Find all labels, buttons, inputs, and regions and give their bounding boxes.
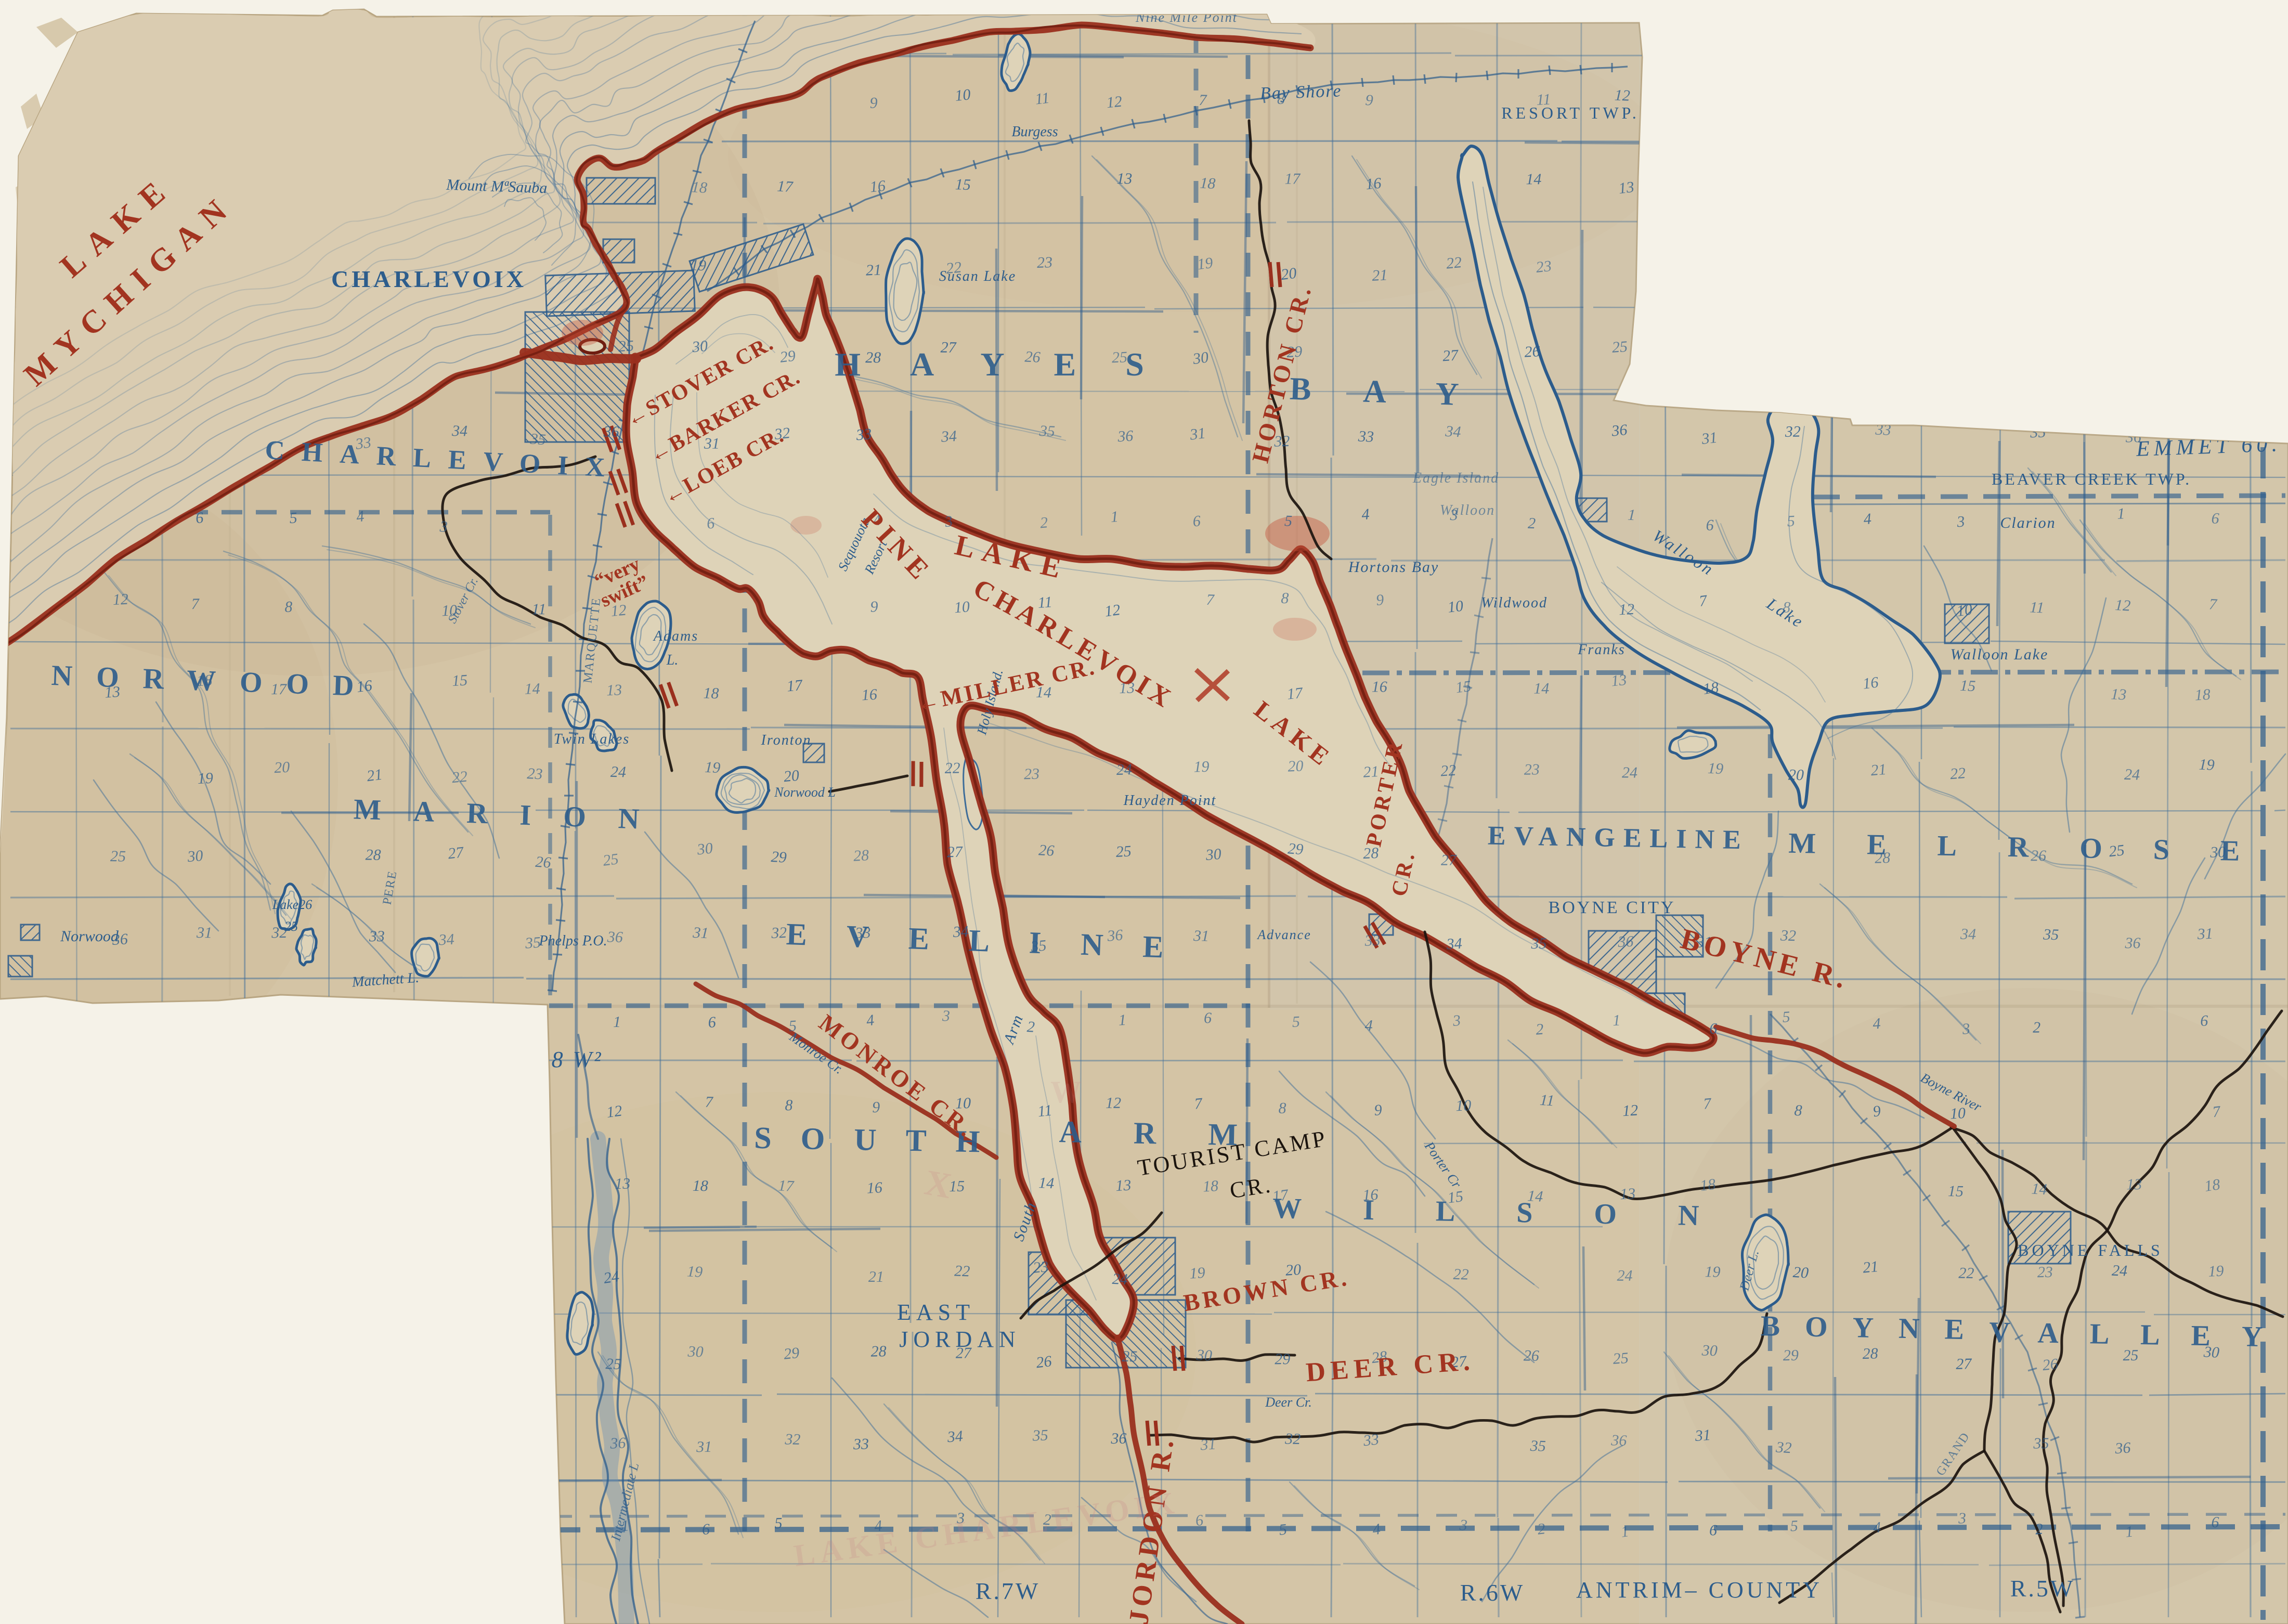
svg-text:9: 9 (872, 1099, 880, 1116)
svg-text:30: 30 (1195, 1346, 1213, 1365)
svg-text:19: 19 (1707, 760, 1724, 777)
svg-text:28: 28 (865, 349, 881, 366)
svg-text:22: 22 (1958, 1265, 1974, 1282)
svg-text:22: 22 (451, 768, 468, 787)
svg-text:Deer Cr.: Deer Cr. (1265, 1395, 1312, 1410)
svg-text:25: 25 (2108, 841, 2125, 860)
svg-text:Norwood L: Norwood L (774, 785, 836, 800)
svg-text:19: 19 (197, 770, 213, 787)
svg-text:6: 6 (2211, 510, 2219, 527)
svg-text:3: 3 (1957, 1510, 1966, 1527)
svg-text:24: 24 (2111, 1262, 2127, 1280)
svg-text:19: 19 (1189, 1264, 1206, 1282)
svg-text:23: 23 (527, 765, 543, 783)
svg-text:26: 26 (1524, 1347, 1539, 1365)
svg-text:17: 17 (1284, 170, 1301, 187)
svg-text:13: 13 (1619, 1185, 1636, 1203)
svg-text:8: 8 (1783, 599, 1791, 616)
svg-text:3: 3 (1451, 1012, 1461, 1030)
svg-text:27: 27 (956, 1344, 972, 1361)
svg-text:30: 30 (186, 847, 204, 866)
svg-text:30: 30 (1204, 846, 1222, 864)
svg-text:13: 13 (1610, 671, 1628, 690)
svg-text:Lake26: Lake26 (272, 897, 313, 912)
svg-text:12: 12 (1618, 601, 1634, 618)
svg-text:30: 30 (2203, 1343, 2220, 1361)
svg-text:CHARLEVOIX: CHARLEVOIX (331, 266, 527, 292)
svg-text:RESORT TWP.: RESORT TWP. (1501, 103, 1640, 122)
svg-text:21: 21 (868, 1268, 884, 1285)
svg-text:8: 8 (1277, 90, 1285, 108)
svg-text:24: 24 (610, 763, 627, 781)
svg-text:R.5W: R.5W (2010, 1575, 2075, 1602)
svg-text:22: 22 (944, 759, 960, 777)
svg-text:12: 12 (1622, 1101, 1639, 1120)
svg-text:36: 36 (609, 1434, 626, 1452)
svg-text:16: 16 (1372, 678, 1387, 695)
svg-text:13: 13 (2126, 1176, 2142, 1193)
svg-text:17: 17 (786, 677, 804, 695)
svg-text:5: 5 (1292, 1013, 1301, 1031)
svg-text:14: 14 (1038, 1174, 1055, 1192)
svg-text:18: 18 (1202, 1177, 1219, 1196)
svg-text:21: 21 (865, 261, 882, 279)
svg-text:33: 33 (854, 924, 871, 942)
svg-text:3: 3 (1459, 1516, 1468, 1534)
svg-text:24: 24 (603, 1268, 620, 1287)
svg-text:10: 10 (441, 602, 457, 619)
svg-text:HAYES: HAYES (835, 346, 1193, 383)
svg-text:36: 36 (1106, 926, 1124, 944)
svg-text:18: 18 (1200, 174, 1216, 192)
svg-text:L.: L. (666, 652, 679, 668)
svg-text:4: 4 (1873, 1519, 1881, 1537)
svg-text:1: 1 (613, 1014, 621, 1031)
svg-text:Phelps P.O.: Phelps P.O. (539, 933, 607, 949)
svg-text:Norwood: Norwood (60, 928, 119, 945)
svg-text:6: 6 (2211, 1514, 2219, 1531)
svg-text:19: 19 (2208, 1262, 2224, 1280)
svg-text:20: 20 (783, 767, 800, 786)
svg-text:EAST: EAST (897, 1300, 975, 1325)
svg-text:EVANGELINE: EVANGELINE (1487, 821, 1749, 855)
svg-text:11: 11 (1539, 1092, 1555, 1110)
svg-text:Mount MªSauba: Mount MªSauba (446, 176, 548, 197)
svg-text:10: 10 (1949, 1105, 1966, 1122)
svg-text:24: 24 (1116, 761, 1132, 778)
svg-text:36: 36 (2125, 934, 2141, 952)
svg-text:29: 29 (771, 848, 787, 866)
svg-text:27: 27 (1441, 852, 1458, 869)
svg-text:22: 22 (1453, 1266, 1469, 1283)
svg-text:21: 21 (1371, 266, 1388, 284)
svg-text:Wildwood: Wildwood (1481, 595, 1548, 611)
svg-text:33: 33 (853, 1435, 869, 1453)
svg-text:22: 22 (1440, 762, 1457, 780)
svg-text:13: 13 (615, 1175, 631, 1193)
svg-text:35: 35 (1529, 1437, 1546, 1455)
svg-text:17: 17 (271, 681, 288, 698)
svg-text:34: 34 (451, 422, 468, 440)
svg-text:2: 2 (1039, 514, 1049, 531)
svg-text:4: 4 (1873, 1015, 1881, 1033)
svg-text:12: 12 (1614, 87, 1630, 105)
svg-text:VALLEY: VALLEY (1989, 1316, 2288, 1354)
svg-text:Clarion: Clarion (2000, 514, 2056, 531)
svg-text:8: 8 (1278, 1100, 1286, 1117)
svg-text:30: 30 (1191, 348, 1210, 368)
svg-text:BOYNE CITY: BOYNE CITY (1549, 898, 1676, 917)
svg-text:29: 29 (1783, 1347, 1799, 1365)
svg-text:10: 10 (954, 598, 971, 616)
svg-text:18: 18 (1699, 1176, 1717, 1194)
svg-text:3: 3 (439, 518, 448, 536)
svg-text:12: 12 (1106, 93, 1123, 112)
svg-text:21: 21 (366, 766, 383, 785)
svg-text:BOYNE FALLS: BOYNE FALLS (2018, 1241, 2163, 1259)
svg-text:31: 31 (1193, 927, 1210, 945)
svg-text:17: 17 (778, 1177, 796, 1195)
svg-text:4: 4 (1361, 505, 1370, 523)
svg-text:9: 9 (1364, 92, 1373, 109)
svg-text:8: 8 (284, 599, 293, 616)
svg-text:6: 6 (701, 1521, 710, 1538)
svg-text:1: 1 (1110, 508, 1119, 526)
svg-text:13: 13 (1116, 170, 1132, 187)
svg-text:10: 10 (954, 86, 971, 105)
svg-text:12: 12 (2114, 596, 2131, 615)
svg-text:24: 24 (2124, 766, 2140, 784)
svg-text:26: 26 (2031, 847, 2046, 864)
svg-text:5: 5 (289, 509, 298, 527)
svg-text:6: 6 (1204, 1009, 1212, 1027)
svg-text:23: 23 (1036, 254, 1052, 271)
svg-text:13: 13 (1115, 1176, 1132, 1194)
svg-text:27: 27 (1956, 1355, 1973, 1373)
svg-text:5: 5 (788, 1017, 797, 1035)
svg-text:ANTRIM– COUNTY: ANTRIM– COUNTY (1576, 1577, 1823, 1603)
svg-text:26: 26 (2042, 1355, 2059, 1374)
svg-text:31: 31 (1199, 1435, 1216, 1453)
svg-text:15: 15 (451, 671, 468, 690)
svg-text:32: 32 (1780, 927, 1797, 944)
svg-text:11: 11 (2030, 599, 2045, 616)
svg-text:18: 18 (2203, 1176, 2221, 1195)
svg-text:19: 19 (704, 759, 721, 777)
svg-text:Franks: Franks (1577, 642, 1625, 658)
svg-text:1: 1 (1118, 1011, 1127, 1029)
svg-text:6: 6 (1706, 516, 1714, 534)
svg-text:6: 6 (1192, 512, 1201, 530)
svg-text:35: 35 (1038, 422, 1055, 440)
svg-text:12: 12 (112, 591, 129, 608)
svg-text:6: 6 (1709, 1020, 1718, 1037)
svg-text:18: 18 (196, 671, 213, 690)
svg-text:25: 25 (618, 337, 634, 355)
svg-text:25: 25 (605, 1355, 621, 1373)
svg-text:29: 29 (1287, 840, 1304, 858)
svg-text:34: 34 (946, 1427, 964, 1446)
svg-text:23: 23 (1535, 257, 1552, 276)
svg-text:16: 16 (861, 686, 878, 704)
svg-text:26: 26 (1038, 841, 1055, 860)
svg-text:33: 33 (354, 434, 372, 453)
svg-text:29: 29 (1275, 1350, 1290, 1368)
svg-text:5: 5 (1787, 512, 1795, 530)
svg-text:32: 32 (1785, 423, 1801, 440)
svg-text:25: 25 (1611, 338, 1628, 356)
svg-text:1: 1 (2125, 1523, 2134, 1541)
svg-text:13: 13 (606, 681, 622, 699)
svg-text:24: 24 (1112, 1270, 1128, 1288)
svg-text:33: 33 (1357, 427, 1374, 445)
svg-text:34: 34 (952, 923, 969, 941)
svg-text:12: 12 (1106, 1095, 1121, 1112)
svg-text:35: 35 (524, 934, 541, 952)
svg-text:34: 34 (940, 427, 957, 446)
svg-text:1: 1 (2117, 505, 2125, 523)
svg-text:31: 31 (692, 924, 709, 942)
svg-text:16: 16 (356, 677, 373, 696)
svg-text:13: 13 (2111, 685, 2127, 703)
svg-text:11: 11 (1536, 90, 1551, 108)
svg-text:15: 15 (955, 176, 971, 193)
svg-text:18: 18 (1702, 679, 1720, 698)
svg-text:20: 20 (1280, 265, 1297, 283)
svg-text:3: 3 (1449, 506, 1458, 524)
svg-text:6: 6 (707, 1014, 717, 1031)
svg-text:2: 2 (1535, 1021, 1544, 1038)
svg-text:26: 26 (1524, 343, 1541, 360)
svg-text:21: 21 (1870, 761, 1887, 779)
svg-text:30: 30 (687, 1343, 704, 1360)
svg-text:19: 19 (1193, 758, 1210, 776)
svg-text:14: 14 (1533, 680, 1549, 697)
svg-text:28: 28 (1875, 849, 1891, 867)
svg-text:23: 23 (2037, 1264, 2053, 1281)
svg-text:10: 10 (1956, 601, 1973, 620)
svg-text:R.7W: R.7W (976, 1578, 1041, 1604)
svg-text:2: 2 (1528, 515, 1536, 532)
svg-text:9: 9 (870, 598, 878, 616)
svg-text:21: 21 (1862, 1258, 1879, 1277)
svg-text:9: 9 (1374, 1101, 1383, 1119)
svg-text:4: 4 (1863, 510, 1872, 528)
svg-text:19: 19 (2199, 756, 2215, 774)
svg-text:2: 2 (1026, 1018, 1035, 1036)
svg-text:33: 33 (369, 928, 385, 945)
svg-text:34: 34 (1446, 935, 1463, 953)
svg-text:Walloon: Walloon (1440, 502, 1495, 518)
svg-text:27: 27 (447, 843, 465, 862)
svg-text:13: 13 (1618, 178, 1635, 197)
svg-text:19: 19 (690, 256, 707, 275)
svg-text:17: 17 (776, 177, 794, 196)
svg-text:16: 16 (1365, 175, 1382, 193)
svg-text:28: 28 (1862, 1345, 1878, 1362)
svg-text:36: 36 (1617, 933, 1634, 951)
svg-text:5: 5 (774, 1515, 783, 1532)
svg-text:Burgess: Burgess (1011, 124, 1058, 140)
svg-text:15: 15 (1959, 677, 1976, 695)
svg-text:27: 27 (1442, 346, 1460, 365)
svg-text:2: 2 (2035, 1521, 2044, 1538)
svg-text:18: 18 (693, 1177, 709, 1195)
svg-text:32: 32 (271, 924, 287, 941)
svg-text:33: 33 (1362, 1431, 1380, 1449)
svg-text:24: 24 (1622, 764, 1637, 781)
svg-text:14: 14 (1527, 1187, 1543, 1205)
svg-text:20: 20 (274, 759, 290, 776)
svg-text:32: 32 (784, 1431, 800, 1448)
svg-text:20: 20 (1792, 1264, 1809, 1282)
svg-text:28: 28 (870, 1343, 887, 1360)
svg-text:31: 31 (696, 1438, 712, 1456)
svg-text:22: 22 (1949, 764, 1966, 783)
svg-text:23: 23 (1024, 765, 1040, 783)
svg-text:3: 3 (1961, 1020, 1971, 1037)
svg-text:25: 25 (1613, 1349, 1629, 1368)
svg-text:35: 35 (2043, 926, 2059, 943)
svg-text:35: 35 (529, 430, 547, 448)
svg-text:1: 1 (1612, 1012, 1620, 1030)
svg-text:Walloon Lake: Walloon Lake (1951, 646, 2049, 663)
svg-text:BOYNE: BOYNE (1760, 1310, 1989, 1346)
svg-text:14: 14 (524, 680, 540, 698)
svg-text:20: 20 (1788, 766, 1804, 784)
svg-text:8: 8 (1794, 1102, 1803, 1120)
svg-text:Adams: Adams (653, 628, 698, 644)
svg-text:16: 16 (1362, 1186, 1379, 1204)
svg-text:9: 9 (869, 94, 878, 111)
svg-text:35: 35 (1530, 935, 1546, 952)
svg-text:36: 36 (2114, 1439, 2131, 1458)
svg-text:16: 16 (869, 177, 886, 196)
svg-text:5: 5 (1782, 1008, 1791, 1026)
svg-text:5: 5 (1790, 1517, 1798, 1535)
svg-text:35: 35 (2033, 1435, 2049, 1452)
svg-text:8 W²: 8 W² (552, 1047, 603, 1072)
svg-text:23: 23 (1032, 1258, 1049, 1277)
svg-text:23: 23 (1524, 761, 1540, 778)
svg-text:30: 30 (2209, 843, 2226, 861)
svg-text:7: 7 (1199, 92, 1208, 109)
svg-text:12: 12 (1103, 601, 1121, 620)
svg-text:36: 36 (606, 928, 623, 946)
svg-text:22: 22 (945, 258, 962, 277)
svg-text:28: 28 (365, 847, 381, 864)
svg-text:19: 19 (686, 1263, 703, 1281)
svg-text:25: 25 (1115, 842, 1132, 861)
svg-text:11: 11 (531, 601, 546, 618)
svg-text:Bay Shore: Bay Shore (1259, 81, 1342, 103)
svg-text:8: 8 (785, 1097, 792, 1114)
svg-text:25: 25 (110, 848, 126, 865)
svg-text:36: 36 (1610, 421, 1628, 440)
svg-text:15: 15 (1948, 1183, 1964, 1200)
svg-text:5: 5 (1284, 512, 1292, 529)
svg-text:16: 16 (866, 1179, 883, 1197)
svg-text:Hayden Point: Hayden Point (1123, 792, 1217, 809)
svg-text:30: 30 (691, 337, 709, 356)
svg-text:36: 36 (111, 930, 128, 949)
svg-text:14: 14 (2031, 1180, 2048, 1198)
svg-text:26: 26 (1024, 348, 1041, 366)
svg-text:28: 28 (853, 847, 869, 865)
svg-text:35: 35 (1032, 1426, 1048, 1444)
svg-text:36: 36 (1610, 1432, 1627, 1449)
svg-text:19: 19 (1705, 1263, 1720, 1280)
svg-text:14: 14 (1526, 171, 1541, 188)
svg-text:18: 18 (2194, 686, 2211, 704)
svg-text:31: 31 (1700, 429, 1719, 448)
svg-text:24: 24 (1617, 1267, 1632, 1284)
svg-text:6: 6 (2200, 1012, 2208, 1030)
svg-text:1: 1 (1627, 506, 1636, 524)
svg-text:10: 10 (1447, 597, 1464, 616)
svg-text:12: 12 (605, 1102, 623, 1121)
svg-text:3: 3 (942, 1007, 950, 1024)
svg-text:29: 29 (779, 347, 796, 366)
svg-text:30: 30 (696, 839, 713, 858)
svg-text:18: 18 (691, 178, 708, 197)
svg-text:30: 30 (1701, 1342, 1718, 1359)
svg-text:36: 36 (603, 423, 619, 440)
svg-text:31: 31 (196, 924, 213, 942)
svg-text:Twin Lakes: Twin Lakes (554, 731, 630, 747)
svg-text:26: 26 (1035, 1353, 1053, 1371)
svg-text:7: 7 (191, 595, 200, 613)
svg-text:19: 19 (1197, 254, 1214, 273)
svg-text:3: 3 (1956, 513, 1966, 530)
svg-text:16: 16 (1862, 674, 1879, 693)
svg-text:15: 15 (1454, 678, 1472, 697)
svg-text:34: 34 (438, 931, 455, 949)
svg-text:2: 2 (2033, 1019, 2040, 1036)
svg-text:8: 8 (1281, 590, 1289, 607)
svg-text:10: 10 (1455, 1097, 1472, 1114)
svg-text:W: W (1050, 1075, 1082, 1109)
svg-text:36: 36 (1116, 427, 1134, 446)
svg-text:35: 35 (1030, 937, 1047, 956)
svg-text:27: 27 (940, 339, 957, 356)
svg-text:Eagle Island: Eagle Island (1412, 470, 1499, 486)
svg-text:BEAVER CREEK TWP.: BEAVER CREEK TWP. (1992, 470, 2191, 488)
svg-text:11: 11 (1034, 89, 1050, 108)
svg-text:34: 34 (1960, 926, 1977, 943)
svg-text:Advance: Advance (1256, 927, 1311, 942)
svg-text:4: 4 (1364, 1017, 1373, 1034)
svg-text:32: 32 (1775, 1438, 1792, 1457)
svg-text:33: 33 (855, 425, 873, 444)
svg-text:22: 22 (954, 1262, 970, 1280)
svg-text:15: 15 (1447, 1188, 1464, 1206)
svg-text:31: 31 (1694, 1426, 1711, 1445)
svg-text:25: 25 (602, 850, 619, 869)
svg-text:25: 25 (1111, 348, 1127, 366)
svg-text:20: 20 (1288, 757, 1304, 775)
svg-text:26: 26 (535, 853, 552, 872)
svg-text:33: 33 (1364, 932, 1381, 950)
svg-text:7: 7 (705, 1094, 714, 1111)
svg-text:22: 22 (1446, 254, 1463, 272)
svg-text:18: 18 (703, 685, 719, 703)
svg-text:17: 17 (1286, 684, 1304, 703)
svg-text:13: 13 (104, 683, 121, 701)
svg-text:32: 32 (1284, 1430, 1301, 1448)
svg-text:27: 27 (946, 843, 964, 861)
svg-text:6: 6 (1709, 1522, 1717, 1539)
